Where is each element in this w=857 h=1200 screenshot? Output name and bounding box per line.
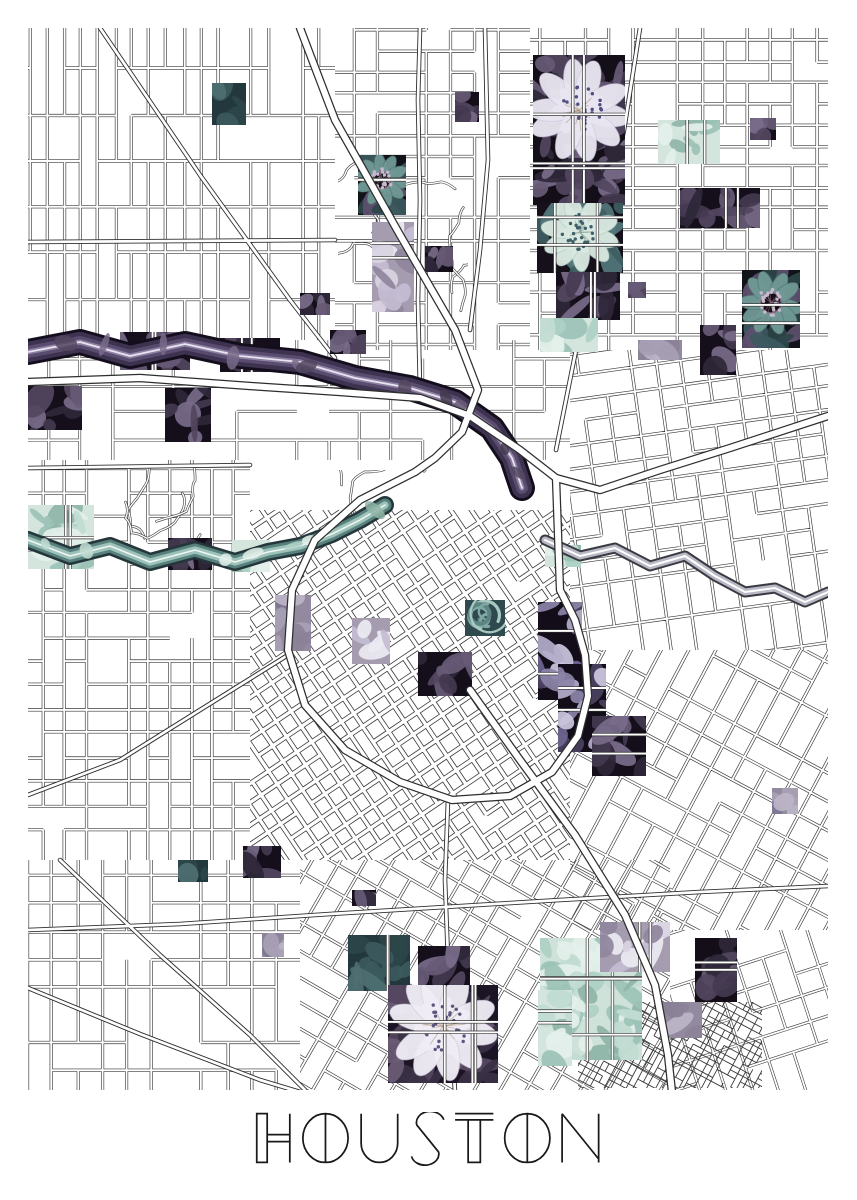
houston-title-lettering bbox=[255, 1112, 603, 1166]
title-letter-T bbox=[455, 1114, 493, 1163]
title-letter-S bbox=[411, 1112, 443, 1165]
title-letter-H bbox=[256, 1114, 289, 1163]
title-letter-N bbox=[562, 1114, 599, 1163]
houston-map-art bbox=[28, 28, 828, 1090]
title-letter-O bbox=[504, 1114, 549, 1163]
poster: HOUSTON bbox=[0, 0, 857, 1200]
poster-title bbox=[0, 1112, 857, 1166]
poster-title-text: HOUSTON bbox=[0, 0, 1, 1]
title-letter-U bbox=[361, 1114, 398, 1163]
title-letter-O bbox=[302, 1114, 347, 1163]
